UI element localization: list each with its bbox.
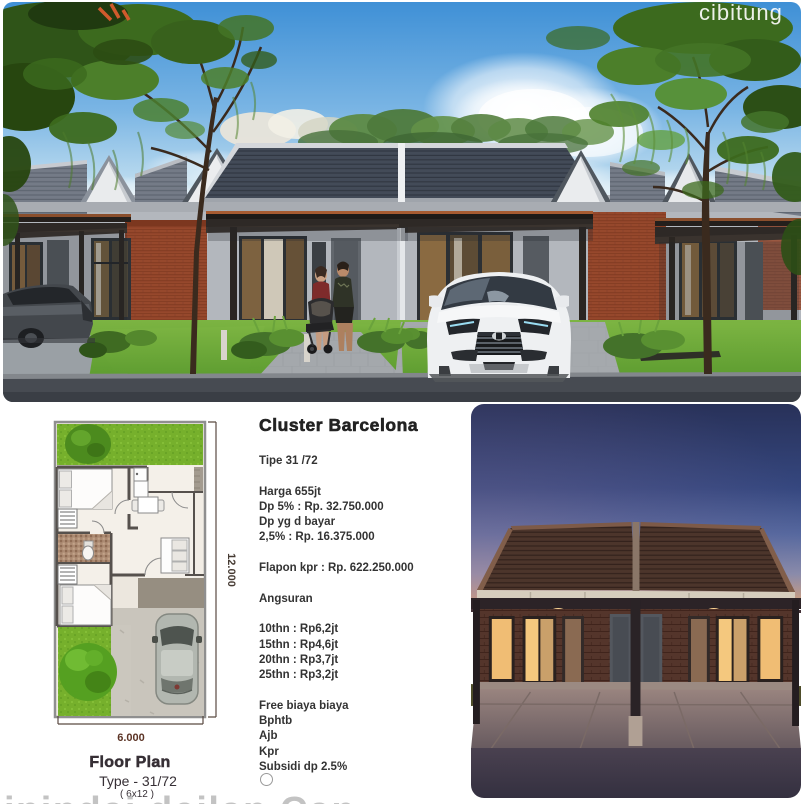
svg-text:6.000: 6.000: [117, 732, 145, 742]
svg-text:12.000: 12.000: [225, 553, 237, 587]
